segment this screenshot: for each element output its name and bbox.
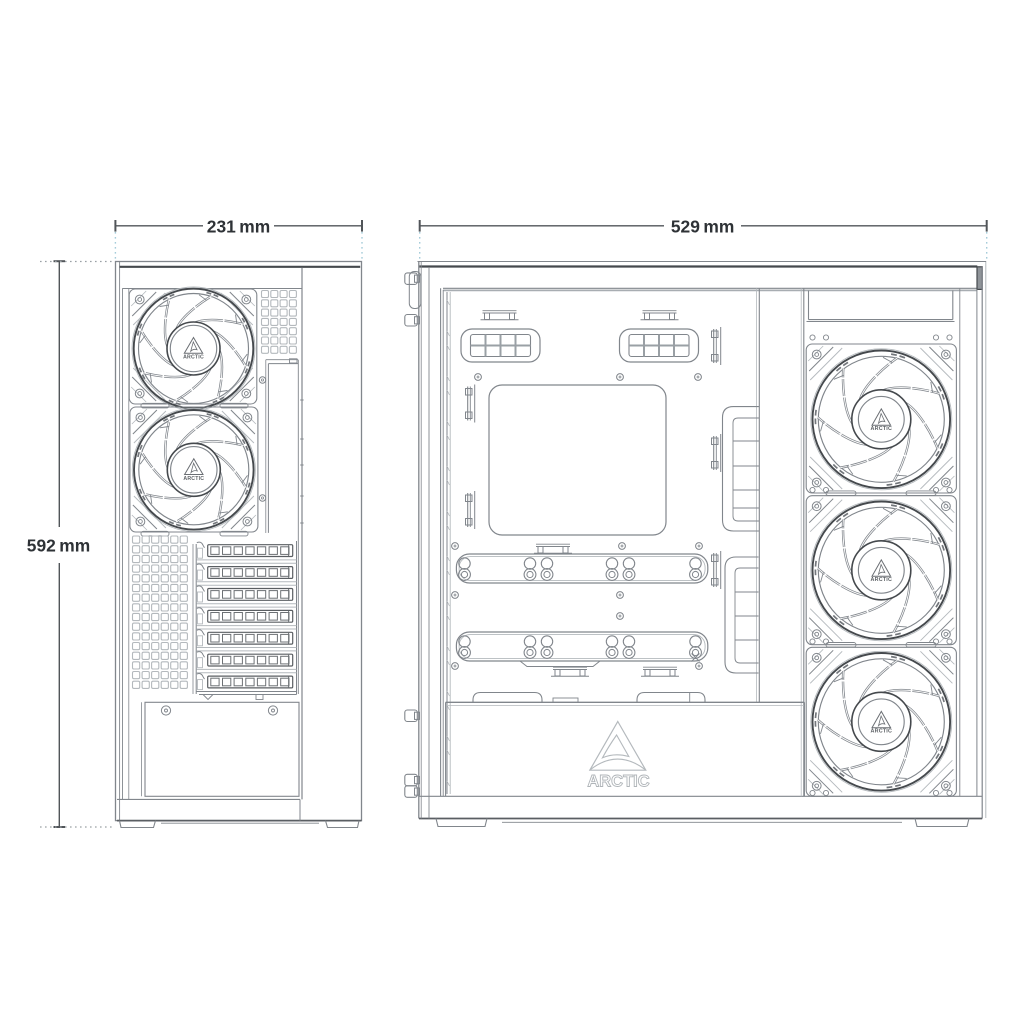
svg-text:ARCTIC: ARCTIC bbox=[183, 476, 204, 482]
svg-text:ARCTIC: ARCTIC bbox=[587, 773, 649, 791]
svg-text:ARCTIC: ARCTIC bbox=[871, 728, 893, 734]
svg-text:ARCTIC: ARCTIC bbox=[871, 577, 893, 583]
svg-text:231 mm: 231 mm bbox=[207, 216, 270, 236]
svg-text:ARCTIC: ARCTIC bbox=[183, 355, 204, 361]
svg-text:ARCTIC: ARCTIC bbox=[871, 426, 893, 432]
svg-text:592 mm: 592 mm bbox=[27, 536, 90, 556]
svg-text:529 mm: 529 mm bbox=[671, 216, 734, 236]
